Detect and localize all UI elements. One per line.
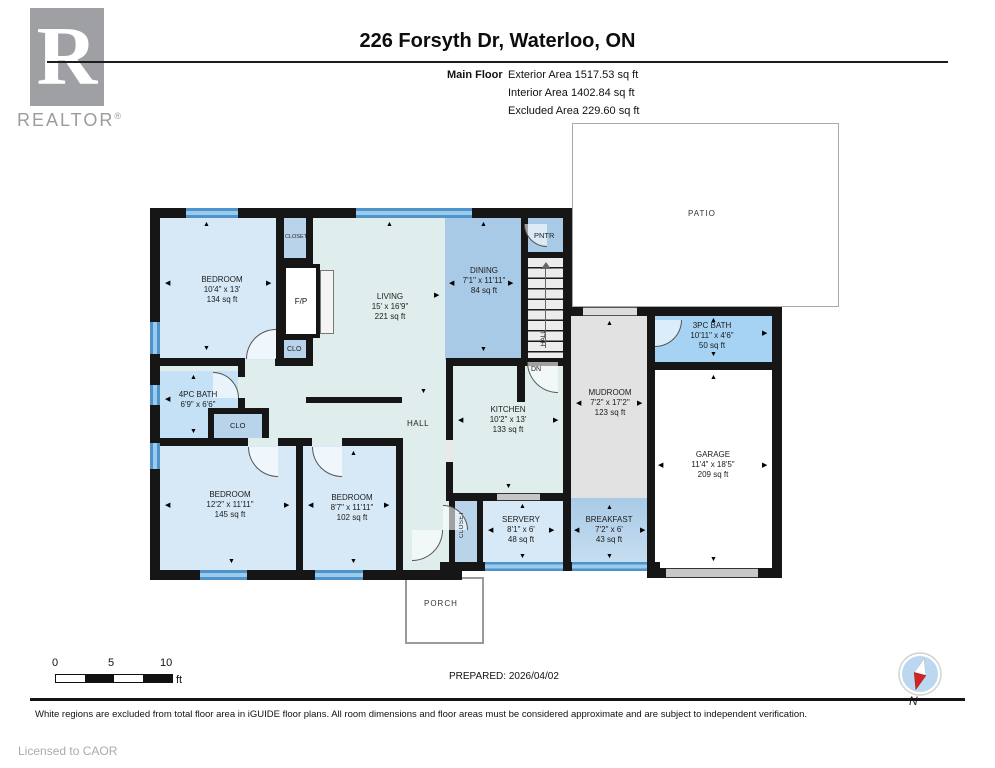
exterior-area: Exterior Area 1517.53 sq ft (508, 69, 638, 81)
window (150, 443, 160, 469)
page-title: 226 Forsyth Dr, Waterloo, ON (0, 30, 995, 53)
window (150, 322, 160, 354)
dim-arrow-icon: ▼ (519, 553, 526, 560)
dim-arrow-icon: ◀ (165, 280, 170, 287)
dim-arrow-icon: ◀ (165, 502, 170, 509)
room-name: MUDROOM (588, 388, 631, 398)
dim-arrow-icon: ◀ (488, 527, 493, 534)
disclaimer-text: White regions are excluded from total fl… (35, 709, 960, 720)
wall (150, 358, 245, 366)
dim-arrow-icon: ▶ (637, 400, 642, 407)
porch-area (405, 577, 484, 644)
room-label-bedroom-3: BEDROOM 8'7" x 11'11" 102 sq ft (331, 493, 374, 523)
room-area: 133 sq ft (490, 425, 527, 435)
room-dims: 7'2" x 6' (585, 525, 632, 535)
dim-arrow-icon: ▶ (508, 280, 513, 287)
room-dims: 7'1" x 11'11" (463, 276, 506, 286)
wall (647, 362, 782, 370)
room-area: 123 sq ft (588, 408, 631, 418)
wall (262, 408, 269, 438)
dim-arrow-icon: ▼ (710, 351, 717, 358)
wall (150, 438, 248, 446)
room-dims: 6'9" x 6'6" (179, 400, 218, 410)
floorplan-page: R REALTOR® 226 Forsyth Dr, Waterloo, ON … (0, 0, 995, 768)
room-area: 48 sq ft (502, 535, 540, 545)
dim-arrow-icon: ◀ (458, 417, 463, 424)
room-label-kitchen: KITCHEN 10'2" x 13' 133 sq ft (490, 405, 527, 435)
window (315, 570, 363, 580)
dim-arrow-icon: ▶ (549, 527, 554, 534)
dim-arrow-icon: ▼ (350, 558, 357, 565)
wall (772, 307, 782, 578)
fireplace-label: F/P (295, 297, 307, 306)
realtor-logo-icon: R (30, 8, 104, 106)
dim-arrow-icon: ▶ (266, 280, 271, 287)
dim-arrow-icon: ◀ (574, 527, 579, 534)
wall (296, 446, 303, 570)
dim-arrow-icon: ▲ (606, 504, 613, 511)
room-name: BEDROOM (201, 275, 242, 285)
registered-mark: ® (114, 111, 123, 121)
room-label-mudroom: MUDROOM 7'2" x 17'2" 123 sq ft (588, 388, 631, 418)
room-area: 102 sq ft (331, 513, 374, 523)
pantry-label: PNTR (534, 231, 554, 240)
scale-unit: ft (176, 674, 182, 686)
clo-top-label: CLO (287, 346, 301, 353)
room-name: BREAKFAST (585, 515, 632, 525)
fireplace: F/P (282, 264, 320, 338)
dim-arrow-icon: ▲ (386, 221, 393, 228)
scale-bar (55, 674, 173, 683)
room-label-servery: SERVERY 8'1" x 6' 48 sq ft (502, 515, 540, 545)
interior-area: Interior Area 1402.84 sq ft (508, 87, 635, 99)
room-dims: 12'2" x 11'11" (206, 500, 253, 510)
window (150, 385, 160, 405)
room-name: 4PC BATH (179, 390, 218, 400)
room-label-bath4: 4PC BATH 6'9" x 6'6" (179, 390, 218, 410)
dim-arrow-icon: ▲ (710, 374, 717, 381)
realtor-logo-letter: R (37, 15, 98, 99)
room-name: BEDROOM (206, 490, 253, 500)
door-threshold (446, 440, 453, 462)
room-name: SERVERY (502, 515, 540, 525)
room-dims: 7'2" x 17'2" (588, 398, 631, 408)
excluded-area: Excluded Area 229.60 sq ft (508, 105, 639, 117)
window (356, 208, 472, 218)
room-label-garage: GARAGE 11'4" x 18'5" 209 sq ft (691, 450, 734, 480)
room-name: LIVING (372, 292, 409, 302)
dim-arrow-icon: ▲ (710, 317, 717, 324)
garage-door (666, 568, 758, 578)
patio-label: PATIO (688, 209, 716, 218)
porch-label: PORCH (424, 599, 458, 608)
scale-tick-5: 5 (108, 657, 114, 669)
wall (477, 501, 483, 570)
scale-tick-10: 10 (160, 657, 172, 669)
closet-vertical-label: CLOSET (459, 511, 465, 538)
wall (276, 358, 313, 366)
door-threshold (583, 307, 637, 316)
room-dims: 10'2" x 13' (490, 415, 527, 425)
stair-direction-arrow-icon (541, 262, 551, 269)
dim-arrow-icon: ▼ (480, 346, 487, 353)
dim-arrow-icon: ◀ (658, 462, 663, 469)
window (200, 570, 247, 580)
room-label-living: LIVING 15' x 16'9" 221 sq ft (372, 292, 409, 322)
room-area: 221 sq ft (372, 312, 409, 322)
room-area: 145 sq ft (206, 510, 253, 520)
dim-arrow-icon: ◀ (165, 396, 170, 403)
realtor-logo-text: REALTOR® (17, 110, 123, 131)
dim-arrow-icon: ▶ (762, 462, 767, 469)
room-dims: 15' x 16'9" (372, 302, 409, 312)
dim-arrow-icon: ▼ (505, 483, 512, 490)
room-name: BEDROOM (331, 493, 374, 503)
scale-tick-0: 0 (52, 657, 58, 669)
dim-arrow-icon: ▶ (384, 502, 389, 509)
fireplace-hearth (320, 270, 334, 334)
floor-label: Main Floor (447, 69, 503, 81)
wall (396, 438, 403, 570)
dim-arrow-icon: ▲ (203, 221, 210, 228)
realtor-word: REALTOR (17, 110, 114, 130)
dim-arrow-icon: ▶ (434, 292, 439, 299)
room-dims: 10'11" x 4'6" (690, 331, 733, 341)
room-area: 43 sq ft (585, 535, 632, 545)
dn-label: DN (531, 366, 541, 373)
room-label-bath3: 3PC BATH 10'11" x 4'6" 50 sq ft (690, 321, 733, 351)
license-text: Licensed to CAOR (18, 744, 117, 758)
room-dims: 8'7" x 11'11" (331, 503, 374, 513)
room-area: 209 sq ft (691, 470, 734, 480)
footer-divider (30, 698, 965, 701)
compass-north-label: N (909, 694, 918, 708)
dim-arrow-icon: ◀ (308, 502, 313, 509)
dim-arrow-icon: ▼ (710, 556, 717, 563)
compass-icon (898, 652, 942, 696)
dim-arrow-icon: ▼ (420, 388, 427, 395)
dim-arrow-icon: ▶ (640, 527, 645, 534)
room-area: 50 sq ft (690, 341, 733, 351)
dim-arrow-icon: ▲ (606, 320, 613, 327)
room-label-dining: DINING 7'1" x 11'11" 84 sq ft (463, 266, 506, 296)
pass-through (497, 493, 540, 501)
room-dims: 11'4" x 18'5" (691, 460, 734, 470)
wall (563, 316, 571, 570)
wall (647, 316, 655, 570)
window (485, 562, 563, 571)
dim-arrow-icon: ◀ (576, 400, 581, 407)
room-area: 84 sq ft (463, 286, 506, 296)
window (572, 562, 647, 571)
wall (517, 360, 525, 402)
room-dims: 8'1" x 6' (502, 525, 540, 535)
room-area: 134 sq ft (201, 295, 242, 305)
wall (563, 208, 572, 316)
title-divider (47, 61, 948, 63)
room-name: DINING (463, 266, 506, 276)
room-name: KITCHEN (490, 405, 527, 415)
dim-arrow-icon: ▼ (203, 345, 210, 352)
dim-arrow-icon: ▶ (553, 417, 558, 424)
dim-arrow-icon: ▼ (228, 558, 235, 565)
room-label-bedroom-1: BEDROOM 10'4" x 13' 134 sq ft (201, 275, 242, 305)
room-label-breakfast: BREAKFAST 7'2" x 6' 43 sq ft (585, 515, 632, 545)
room-name: GARAGE (691, 450, 734, 460)
dim-arrow-icon: ▲ (350, 450, 357, 457)
dim-arrow-icon: ▼ (190, 428, 197, 435)
wall (342, 438, 403, 446)
clo-bath-label: CLO (230, 421, 245, 430)
dim-arrow-icon: ▶ (284, 502, 289, 509)
wall (208, 414, 214, 438)
dim-arrow-icon: ▲ (519, 503, 526, 510)
dim-arrow-icon: ▲ (480, 221, 487, 228)
dim-arrow-icon: ▶ (762, 330, 767, 337)
dim-arrow-icon: ▼ (606, 553, 613, 560)
room-dims: 10'4" x 13' (201, 285, 242, 295)
wall (521, 252, 571, 258)
wall (306, 397, 402, 403)
dim-arrow-icon: ▲ (190, 374, 197, 381)
wall (446, 366, 453, 442)
window (186, 208, 238, 218)
dim-arrow-icon: ◀ (449, 280, 454, 287)
wall (238, 363, 245, 377)
room-label-bedroom-2: BEDROOM 12'2" x 11'11" 145 sq ft (206, 490, 253, 520)
hall-label: HALL (407, 419, 429, 428)
wall (150, 570, 462, 580)
closet-top-label: CLOSET (285, 234, 307, 240)
hall-stairs-label: HALL (540, 330, 547, 346)
prepared-date: PREPARED: 2026/04/02 (449, 671, 559, 682)
wall (278, 438, 312, 446)
wall (306, 208, 313, 264)
